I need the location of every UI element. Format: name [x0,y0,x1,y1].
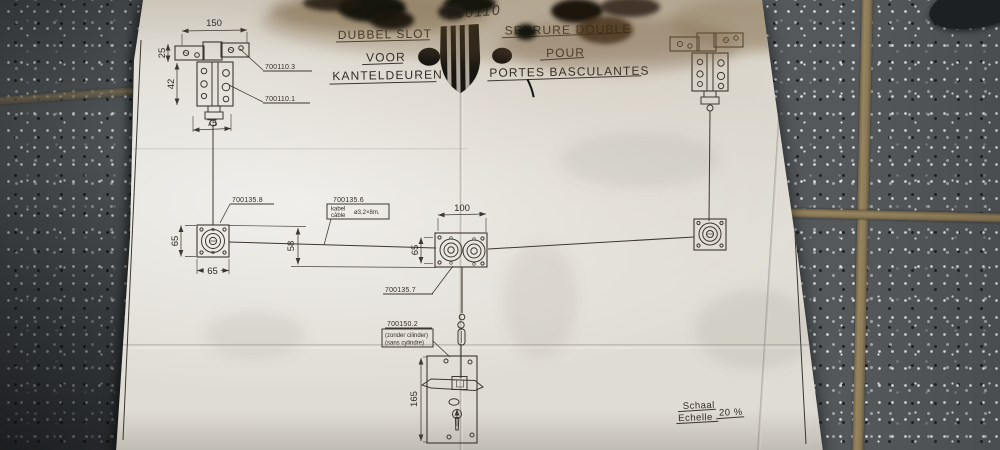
dim-bracket-offset: 75 [207,118,218,129]
dim-corner-plate-width: 65 [207,266,218,277]
label-corner-pulley: 700135.8 [232,197,263,204]
bracket-top-left: 150 25 42 [157,18,312,225]
dim-pulley-plate-height: 65 [410,245,421,256]
label-lock-ref: 700150.2 [387,321,418,328]
photo-scene: 150 25 42 [0,0,1000,450]
label-double-pulley: 700135.7 [385,287,416,294]
double-pulley-center: 100 65 700135.7 [383,203,487,294]
scale-block: Schaal Echelle 20 % [676,399,745,424]
drawing-frame [123,40,806,444]
title-nl-line3: KANTELDEUREN [332,68,443,84]
label-bracket-body: 700110.1 [265,96,295,103]
corner-pulley-right [694,219,726,250]
dim-cable-drop: 58 [286,241,297,252]
label-cable-nl: kabel [331,207,345,213]
dim-pulley-spacing: 100 [454,203,470,214]
label-lock-note-fr: (sans cylindre) [385,341,424,347]
dim-lock-plate-height2: 165 [409,391,420,407]
label-lock-note-nl: (zonder cilinder) [385,333,428,339]
label-bracket-arm: 700110.3 [265,64,295,71]
label-cable-ref: 700135.6 [333,197,364,204]
lock-bottom: 700150.2 (zonder cilinder) (sans cylindr… [382,321,483,443]
dim-bracket-width: 150 [206,18,222,29]
label-cable-fr: câble [331,213,346,219]
dim-corner-plate-height: 65 [170,236,181,247]
turnbuckle [458,267,465,378]
corner-pulley-left: 65 65 700135.8 [170,197,274,277]
dim-bracket-body-height: 42 [166,79,177,90]
dim-bracket-bar-height: 25 [157,48,168,59]
label-cable-spec: ø3,2×8m. [354,210,380,216]
